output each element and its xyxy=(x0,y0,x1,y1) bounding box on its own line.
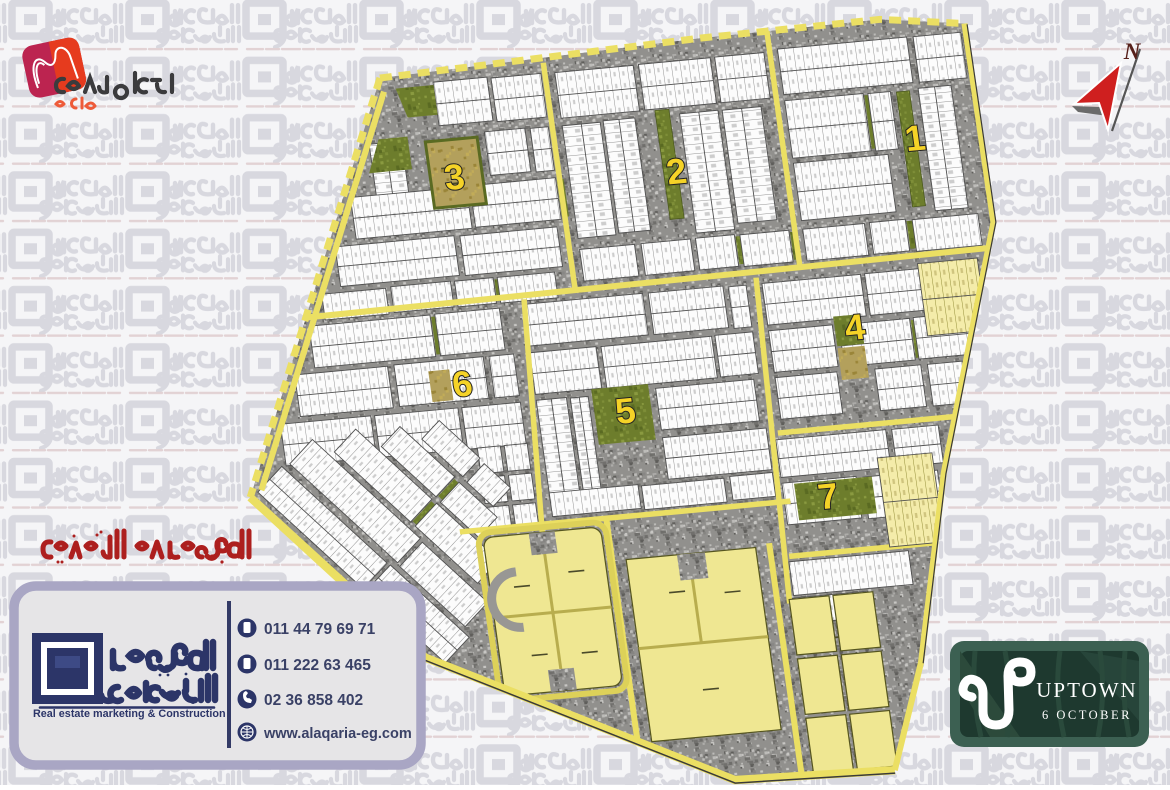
svg-text:s: s xyxy=(191,699,195,706)
svg-text:02 36 858 402: 02 36 858 402 xyxy=(264,692,363,709)
svg-text:UPTOWN: UPTOWN xyxy=(1036,678,1137,702)
svg-text:6 OCTOBER: 6 OCTOBER xyxy=(1042,708,1132,722)
svg-text:www.alaqaria-eg.com: www.alaqaria-eg.com xyxy=(263,726,412,742)
svg-text:011 222 63 465: 011 222 63 465 xyxy=(264,657,371,674)
svg-text:N: N xyxy=(1123,39,1142,64)
svg-text:011 44 79 69 71: 011 44 79 69 71 xyxy=(264,621,376,638)
svg-text:Real estate marketing & Constr: Real estate marketing & Construction xyxy=(33,708,226,720)
